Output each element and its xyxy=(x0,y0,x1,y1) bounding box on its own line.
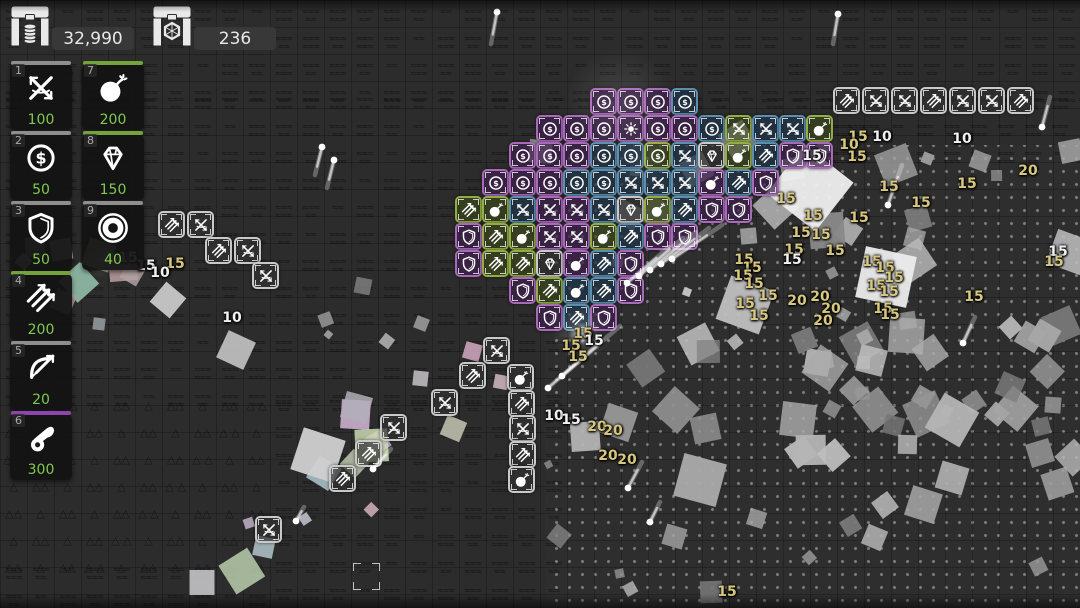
board-tile-shield[interactable] xyxy=(617,277,644,304)
board-tile-xbow[interactable] xyxy=(431,389,458,416)
board-tile-arrows[interactable] xyxy=(482,223,509,250)
svg-text:$: $ xyxy=(655,97,661,106)
board-tile-coin[interactable]: $ xyxy=(509,142,536,169)
board-tile-bomb[interactable] xyxy=(507,364,534,391)
board-tile-arrows[interactable] xyxy=(482,250,509,277)
board-tile-arrows[interactable] xyxy=(617,223,644,250)
coin-icon: $ xyxy=(24,141,58,179)
slot-price: 100 xyxy=(10,112,72,128)
board-tile-xbow[interactable] xyxy=(891,87,918,114)
bomb-icon xyxy=(96,71,130,109)
board-tile-arrows[interactable] xyxy=(752,142,779,169)
svg-text:$: $ xyxy=(682,97,688,106)
board-tile-coin[interactable]: $ xyxy=(590,88,617,115)
board-tile-coin[interactable]: $ xyxy=(536,142,563,169)
board-tile-shield[interactable] xyxy=(698,196,725,223)
board-tile-coin[interactable]: $ xyxy=(671,88,698,115)
svg-text:$: $ xyxy=(601,178,607,187)
svg-text:$: $ xyxy=(547,151,553,160)
svg-text:$: $ xyxy=(601,151,607,160)
board-tile-diamond[interactable] xyxy=(617,196,644,223)
board-tile-xbow[interactable] xyxy=(252,262,279,289)
board-tile-xbow[interactable] xyxy=(380,414,407,441)
board-tile-arrows[interactable] xyxy=(725,169,752,196)
svg-text:$: $ xyxy=(655,151,661,160)
diamond-icon xyxy=(96,141,130,179)
board-tile-arrows[interactable] xyxy=(205,237,232,264)
board-tile-coin[interactable]: $ xyxy=(617,142,644,169)
board-tile-xbow[interactable] xyxy=(949,87,976,114)
board-tile-xbow[interactable] xyxy=(671,169,698,196)
board-tiles-layer: $$$$$$$$$$$$$$$$$$$$$ xyxy=(0,0,1080,608)
board-tile-coin[interactable]: $ xyxy=(644,88,671,115)
board-tile-xbow[interactable] xyxy=(590,196,617,223)
slot-price: 20 xyxy=(10,392,72,408)
selection-cursor xyxy=(353,563,380,590)
board-tile-xbow[interactable] xyxy=(644,169,671,196)
board-tile-coin[interactable]: $ xyxy=(563,142,590,169)
board-tile-xbow[interactable] xyxy=(536,223,563,250)
board-tile-arrows[interactable] xyxy=(509,441,536,468)
slot-price: 200 xyxy=(82,112,144,128)
board-tile-shield[interactable] xyxy=(455,250,482,277)
board-tile-arrows[interactable] xyxy=(563,304,590,331)
board-tile-diamond[interactable] xyxy=(536,250,563,277)
board-tile-bomb[interactable] xyxy=(725,142,752,169)
board-tile-xbow[interactable] xyxy=(978,87,1005,114)
cannon-icon xyxy=(24,421,58,459)
svg-text:$: $ xyxy=(547,178,553,187)
board-tile-shield[interactable] xyxy=(509,277,536,304)
shield-icon xyxy=(24,211,58,249)
svg-text:$: $ xyxy=(493,178,499,187)
board-tile-arrows[interactable] xyxy=(1007,87,1034,114)
arrows-icon xyxy=(24,281,58,319)
board-tile-shield[interactable] xyxy=(536,304,563,331)
svg-text:$: $ xyxy=(574,178,580,187)
board-tile-xbow[interactable] xyxy=(563,223,590,250)
board-tile-arrows[interactable] xyxy=(590,277,617,304)
shop-slot-7[interactable]: 7 200 xyxy=(82,64,144,130)
svg-text:$: $ xyxy=(682,124,688,133)
board-tile-shield[interactable] xyxy=(806,142,833,169)
svg-text:$: $ xyxy=(601,97,607,106)
board-tile-shield[interactable] xyxy=(725,196,752,223)
slot-price: 40 xyxy=(82,252,144,268)
board-tile-arrows[interactable] xyxy=(455,196,482,223)
board-tile-bomb[interactable] xyxy=(482,196,509,223)
board-tile-coin[interactable]: $ xyxy=(536,115,563,142)
board-tile-arrows[interactable] xyxy=(508,390,535,417)
board-tile-arrows[interactable] xyxy=(355,440,382,467)
board-tile-arrows[interactable] xyxy=(536,277,563,304)
board-tile-shield[interactable] xyxy=(590,304,617,331)
svg-text:$: $ xyxy=(574,124,580,133)
board-tile-shield[interactable] xyxy=(644,223,671,250)
slot-price: 300 xyxy=(10,462,72,478)
board-tile-shield[interactable] xyxy=(617,250,644,277)
board-tile-arrows[interactable] xyxy=(509,250,536,277)
board-tile-coin[interactable]: $ xyxy=(644,115,671,142)
board-tile-bomb[interactable] xyxy=(644,196,671,223)
board-tile-xbow[interactable] xyxy=(617,169,644,196)
board-tile-bomb[interactable] xyxy=(806,115,833,142)
slot-price: 50 xyxy=(10,182,72,198)
svg-text:$: $ xyxy=(655,124,661,133)
board-tile-coin[interactable]: $ xyxy=(671,115,698,142)
shop-slot-1[interactable]: 1 100 xyxy=(10,64,72,130)
board-tile-sun[interactable] xyxy=(617,115,644,142)
board-tile-shield[interactable] xyxy=(752,169,779,196)
board-tile-arrows[interactable] xyxy=(590,250,617,277)
board-tile-xbow[interactable] xyxy=(509,196,536,223)
slot-price: 200 xyxy=(10,322,72,338)
shop-slot-3[interactable]: 3 50 xyxy=(10,204,72,270)
board-tile-bomb[interactable] xyxy=(698,169,725,196)
board-tile-diamond[interactable] xyxy=(698,142,725,169)
svg-text:$: $ xyxy=(601,124,607,133)
board-tile-xbow[interactable] xyxy=(255,516,282,543)
board-tile-xbow[interactable] xyxy=(725,115,752,142)
board-tile-bomb[interactable] xyxy=(508,466,535,493)
board-tile-coin[interactable]: $ xyxy=(698,115,725,142)
board-tile-xbow[interactable] xyxy=(187,211,214,238)
svg-text:$: $ xyxy=(547,124,553,133)
board-tile-coin[interactable]: $ xyxy=(644,142,671,169)
shop-slot-2[interactable]: 2 $ 50 xyxy=(10,134,72,200)
board-tile-shield[interactable] xyxy=(671,223,698,250)
board-tile-arrows[interactable] xyxy=(833,87,860,114)
shop-slot-9[interactable]: 9 40 xyxy=(82,204,144,270)
shop-slot-8[interactable]: 8 150 xyxy=(82,134,144,200)
board-tile-coin[interactable]: $ xyxy=(590,169,617,196)
ring-icon xyxy=(96,211,130,249)
board-tile-arrows[interactable] xyxy=(158,211,185,238)
board-tile-arrows[interactable] xyxy=(459,362,486,389)
board-tile-xbow[interactable] xyxy=(752,115,779,142)
board-tile-arrows[interactable] xyxy=(671,196,698,223)
svg-text:$: $ xyxy=(520,151,526,160)
svg-text:$: $ xyxy=(628,151,634,160)
board-tile-coin[interactable]: $ xyxy=(617,88,644,115)
crossbow-icon xyxy=(24,71,58,109)
board-tile-coin[interactable]: $ xyxy=(563,115,590,142)
board-tile-bomb[interactable] xyxy=(590,223,617,250)
board-tile-coin[interactable]: $ xyxy=(509,169,536,196)
board-tile-shield[interactable] xyxy=(455,223,482,250)
svg-text:$: $ xyxy=(628,97,634,106)
svg-text:$: $ xyxy=(35,149,46,168)
shop-slot-4[interactable]: 4 200 xyxy=(10,274,72,340)
board-tile-arrows[interactable] xyxy=(329,465,356,492)
shop-slot-5[interactable]: 5 20 xyxy=(10,344,72,410)
board-tile-xbow[interactable] xyxy=(509,415,536,442)
slot-price: 50 xyxy=(10,252,72,268)
board-tile-xbow[interactable] xyxy=(779,115,806,142)
slot-price: 150 xyxy=(82,182,144,198)
board-tile-xbow[interactable] xyxy=(234,237,261,264)
board-tile-xbow[interactable] xyxy=(536,196,563,223)
shop-slot-6[interactable]: 6 300 xyxy=(10,414,72,480)
board-tile-xbow[interactable] xyxy=(862,87,889,114)
game-field: ≈≈≈ ≈≈≈≈≈≈ ≈≈≈≈≈≈≈ ≈≈≈≈≈≈ ≈≈≈≈≈ ≈≈≈≈≈≈ ≈… xyxy=(0,0,1080,608)
board-tile-bomb[interactable] xyxy=(509,223,536,250)
svg-text:$: $ xyxy=(520,178,526,187)
board-tile-coin[interactable]: $ xyxy=(590,115,617,142)
bow-icon xyxy=(24,351,58,389)
board-tile-bomb[interactable] xyxy=(563,250,590,277)
board-tile-xbow[interactable] xyxy=(671,142,698,169)
board-tile-coin[interactable]: $ xyxy=(482,169,509,196)
board-tile-shield[interactable] xyxy=(779,142,806,169)
svg-text:$: $ xyxy=(574,151,580,160)
board-tile-bomb[interactable] xyxy=(563,277,590,304)
board-tile-coin[interactable]: $ xyxy=(590,142,617,169)
svg-text:$: $ xyxy=(709,124,715,133)
board-tile-coin[interactable]: $ xyxy=(563,169,590,196)
board-tile-xbow[interactable] xyxy=(483,337,510,364)
board-tile-coin[interactable]: $ xyxy=(536,169,563,196)
board-tile-xbow[interactable] xyxy=(563,196,590,223)
board-tile-arrows[interactable] xyxy=(920,87,947,114)
